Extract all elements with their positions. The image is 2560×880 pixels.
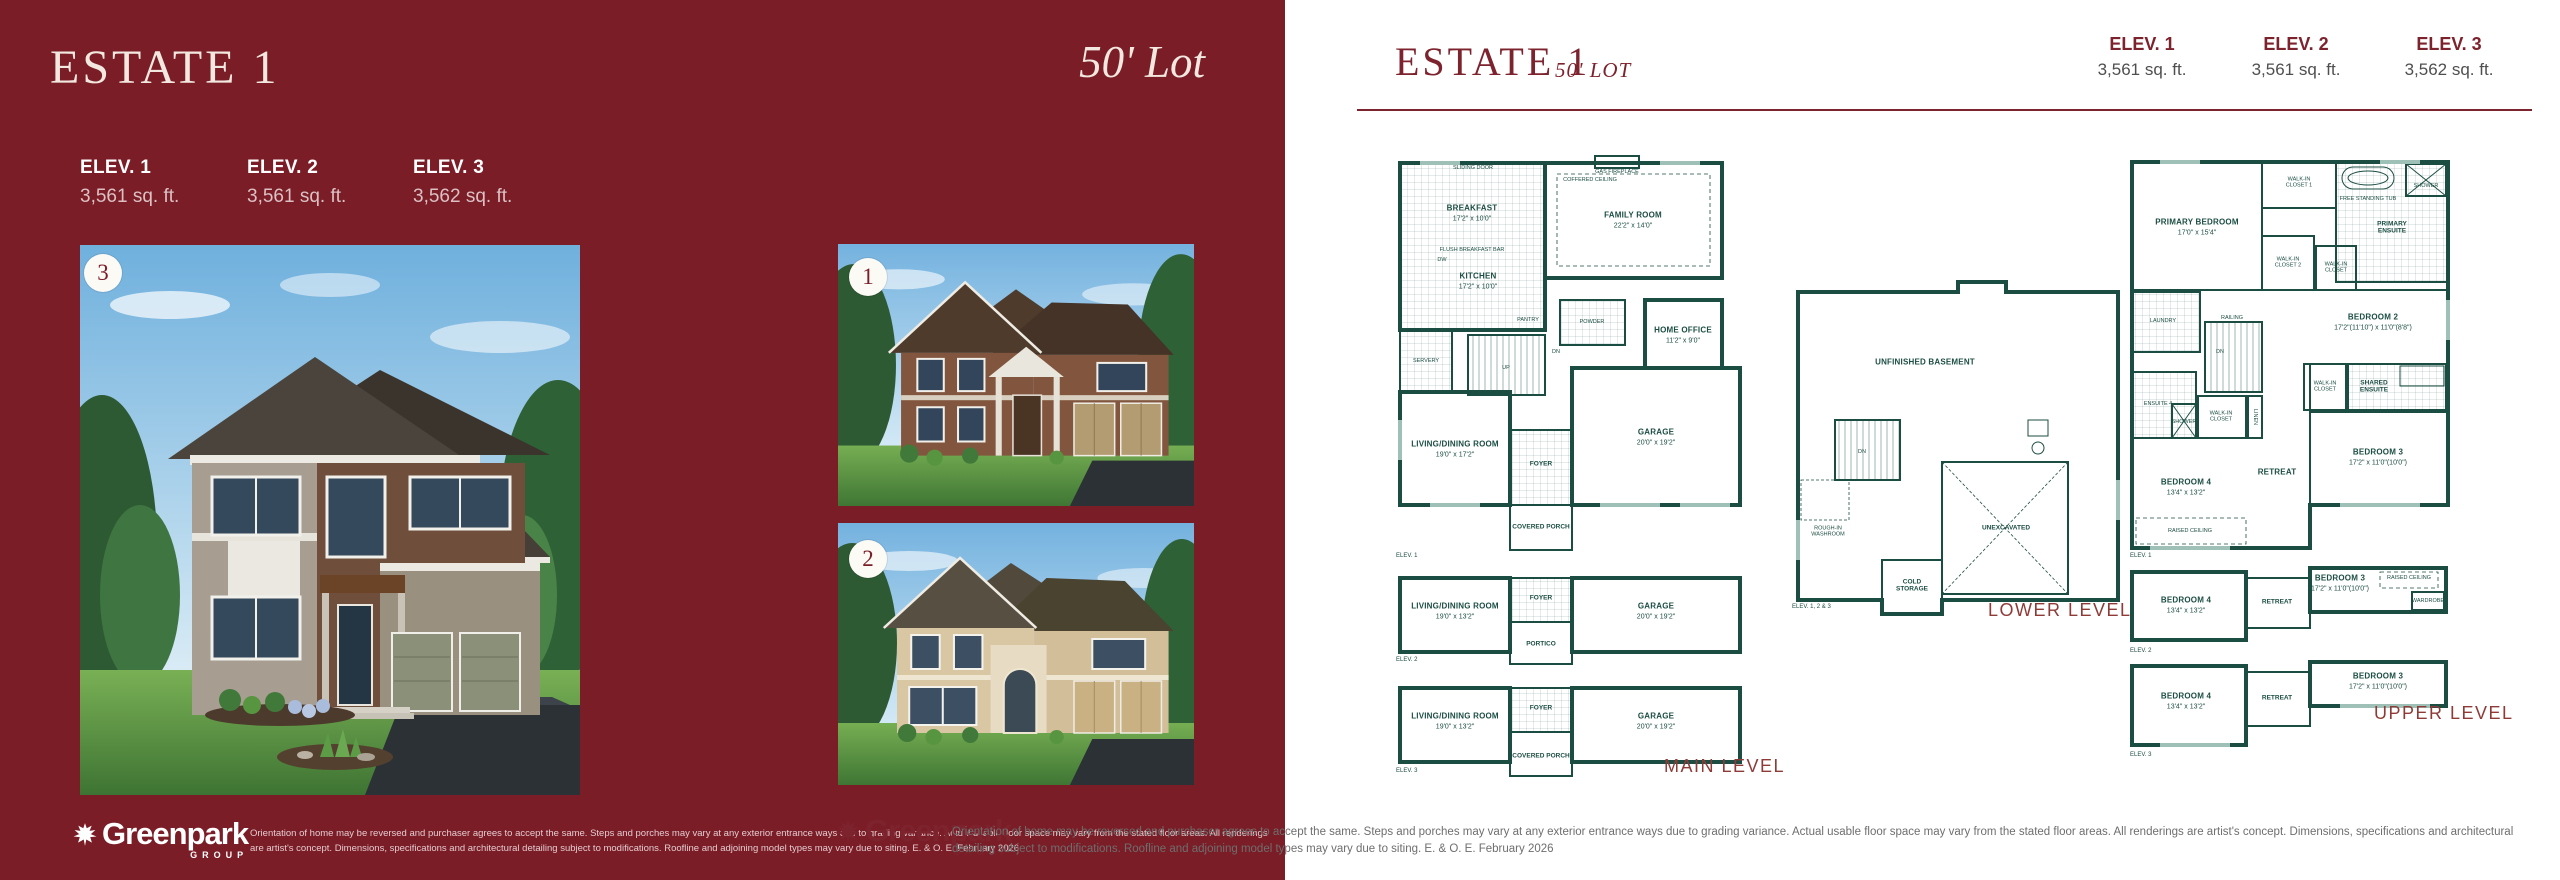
label-covered-porch: COVERED PORCH bbox=[1512, 524, 1569, 531]
label-walk-in-closet-1: WALK-IN CLOSET 1 bbox=[2276, 177, 2322, 190]
label-unexcavated: UNEXCAVATED bbox=[1982, 525, 2030, 532]
disclaimer-text: Orientation of home may be reversed and … bbox=[952, 824, 2534, 859]
label-living-dining: LIVING/DINING ROOM bbox=[1411, 440, 1499, 449]
elevation-area: 3,562 sq. ft. bbox=[2373, 60, 2525, 80]
label-gas-fireplace: GAS FIREPLACE bbox=[1595, 169, 1639, 175]
house-rendering-elevation-1 bbox=[838, 244, 1194, 506]
label-retreat: RETREAT bbox=[2262, 599, 2292, 606]
label-garage: GARAGE bbox=[1638, 712, 1674, 721]
elevation-label: ELEV. 2 bbox=[2220, 34, 2372, 55]
label-bedroom-4: BEDROOM 4 bbox=[2161, 596, 2211, 605]
label-railing: RAILING bbox=[2221, 315, 2243, 321]
brand-name: Greenpark bbox=[102, 816, 248, 851]
label-primary-ensuite: PRIMARY ENSUITE bbox=[2369, 221, 2415, 236]
label-home-office: HOME OFFICE bbox=[1654, 326, 1712, 335]
elevation-label: ELEV. 3 bbox=[413, 157, 512, 179]
label-elev3-tag: ELEV. 3 bbox=[1396, 768, 1417, 774]
lot-size-label: 50' Lot bbox=[1020, 36, 1205, 88]
elevation-label: ELEV. 1 bbox=[80, 157, 179, 179]
label-unfinished-basement: UNFINISHED BASEMENT bbox=[1875, 358, 1975, 367]
label-garage-dim: 20'0" x 19'2" bbox=[1637, 614, 1675, 621]
elevation-info-3: ELEV. 3 3,562 sq. ft. bbox=[2373, 34, 2525, 80]
house-rendering-elevation-2 bbox=[838, 523, 1194, 785]
label-covered-porch: COVERED PORCH bbox=[1512, 753, 1569, 760]
label-walk-in-closet-2: WALK-IN CLOSET 2 bbox=[2268, 257, 2308, 270]
label-raised-ceiling: RAISED CEILING bbox=[2387, 575, 2431, 581]
rendering-badge-3: 3 bbox=[84, 254, 122, 292]
label-foyer: FOYER bbox=[1530, 595, 1552, 602]
brochure-spread: ESTATE 1 50' Lot ELEV. 1 3,561 sq. ft. E… bbox=[0, 0, 2560, 880]
label-portico: PORTICO bbox=[1526, 641, 1556, 648]
elevation-info-2: ELEV. 2 3,561 sq. ft. bbox=[247, 157, 346, 208]
label-up: UP bbox=[1502, 365, 1510, 371]
label-walk-in-closet: WALK-IN CLOSET bbox=[2305, 381, 2345, 394]
house-rendering-elevation-3 bbox=[80, 245, 580, 795]
label-bedroom-4: BEDROOM 4 bbox=[2161, 692, 2211, 701]
lower-level-title: LOWER LEVEL bbox=[1988, 600, 2132, 621]
label-dw: DW bbox=[1437, 257, 1446, 263]
label-shower: SHOWER bbox=[2172, 419, 2197, 425]
label-elev2-tag: ELEV. 2 bbox=[1396, 657, 1417, 663]
label-breakfast-dim: 17'2" x 10'0" bbox=[1453, 216, 1491, 223]
label-bedroom-4-dim: 13'4" x 13'2" bbox=[2167, 490, 2205, 497]
label-linen: LINEN bbox=[2252, 409, 2258, 425]
label-dn: DN bbox=[2216, 349, 2224, 355]
label-flush-breakfast-bar: FLUSH BREAKFAST BAR bbox=[1440, 247, 1505, 253]
label-ensuite-4: ENSUITE 4 bbox=[2144, 401, 2172, 407]
label-bedroom-2: BEDROOM 2 bbox=[2348, 313, 2398, 322]
label-dn: DN bbox=[1552, 349, 1560, 355]
elevation-area: 3,561 sq. ft. bbox=[80, 186, 179, 208]
header-divider bbox=[1357, 109, 2532, 111]
page-title: ESTATE 1 bbox=[50, 40, 279, 95]
rendering-badge-1: 1 bbox=[849, 258, 887, 296]
label-bedroom-3-dim: 17'2" x 11'0"(10'0") bbox=[2349, 460, 2407, 467]
label-primary-bedroom: PRIMARY BEDROOM bbox=[2155, 218, 2238, 227]
maple-leaf-icon bbox=[835, 819, 861, 845]
label-garage: GARAGE bbox=[1638, 428, 1674, 437]
label-coffered-ceiling: COFFERED CEILING bbox=[1563, 177, 1617, 183]
elevation-info-2: ELEV. 2 3,561 sq. ft. bbox=[2220, 34, 2372, 80]
upper-level-title: UPPER LEVEL bbox=[2374, 703, 2514, 724]
elevation-area: 3,561 sq. ft. bbox=[2066, 60, 2218, 80]
elevation-label: ELEV. 3 bbox=[2373, 34, 2525, 55]
label-kitchen-dim: 17'2" x 10'0" bbox=[1459, 284, 1497, 291]
label-elev1-tag: ELEV. 1 bbox=[1396, 553, 1417, 559]
label-garage-dim: 20'0" x 19'2" bbox=[1637, 440, 1675, 447]
label-bedroom-3: BEDROOM 3 bbox=[2353, 448, 2403, 457]
label-garage-dim: 20'0" x 19'2" bbox=[1637, 724, 1675, 731]
label-servery: SERVERY bbox=[1413, 358, 1439, 364]
label-family-room-dim: 22'2" x 14'0" bbox=[1614, 223, 1652, 230]
elevation-area: 3,561 sq. ft. bbox=[2220, 60, 2372, 80]
label-bedroom-2-dim: 17'2"(11'10") x 11'0"(8'8") bbox=[2334, 325, 2412, 332]
label-retreat: RETREAT bbox=[2262, 695, 2292, 702]
label-sliding-door: SLIDING DOOR bbox=[1453, 165, 1493, 171]
label-living-dining: LIVING/DINING ROOM bbox=[1411, 712, 1499, 721]
label-pantry: PANTRY bbox=[1517, 317, 1539, 323]
badge-number: 1 bbox=[862, 264, 874, 290]
label-family-room: FAMILY ROOM bbox=[1604, 211, 1662, 220]
label-living-dining-dim: 19'0" x 13'2" bbox=[1436, 724, 1474, 731]
label-bedroom-3: BEDROOM 3 bbox=[2315, 574, 2365, 583]
elevation-area: 3,561 sq. ft. bbox=[247, 186, 346, 208]
label-walk-in-closet: WALK-IN CLOSET bbox=[2201, 411, 2241, 424]
label-raised-ceiling: RAISED CEILING bbox=[2168, 528, 2212, 534]
label-elev1-tag: ELEV. 1 bbox=[2130, 553, 2151, 559]
maple-leaf-icon bbox=[72, 822, 98, 848]
label-foyer: FOYER bbox=[1530, 705, 1552, 712]
label-garage: GARAGE bbox=[1638, 602, 1674, 611]
label-living-dining-dim: 19'0" x 17'2" bbox=[1436, 452, 1474, 459]
label-laundry: LAUNDRY bbox=[2150, 318, 2176, 324]
label-living-dining: LIVING/DINING ROOM bbox=[1411, 602, 1499, 611]
label-elev3-tag: ELEV. 3 bbox=[2130, 752, 2151, 758]
label-primary-bedroom-dim: 17'0" x 15'4" bbox=[2178, 230, 2216, 237]
elevation-area: 3,562 sq. ft. bbox=[413, 186, 512, 208]
elevation-info-1: ELEV. 1 3,561 sq. ft. bbox=[2066, 34, 2218, 80]
badge-number: 3 bbox=[97, 260, 109, 286]
label-wardrobe: WARDROBE bbox=[2412, 598, 2444, 604]
label-bedroom-3-dim: 17'2" x 11'0"(10'0") bbox=[2311, 586, 2369, 593]
label-breakfast: BREAKFAST bbox=[1447, 204, 1498, 213]
label-bedroom-4-dim: 13'4" x 13'2" bbox=[2167, 608, 2205, 615]
label-retreat: RETREAT bbox=[2258, 468, 2297, 477]
elevation-label: ELEV. 1 bbox=[2066, 34, 2218, 55]
elevation-info-3: ELEV. 3 3,562 sq. ft. bbox=[413, 157, 512, 208]
label-dn: DN bbox=[1858, 449, 1866, 455]
label-bedroom-4: BEDROOM 4 bbox=[2161, 478, 2211, 487]
label-shared-ensuite: SHARED ENSUITE bbox=[2351, 380, 2397, 395]
label-bedroom-4-dim: 13'4" x 13'2" bbox=[2167, 704, 2205, 711]
label-bedroom-3-dim: 17'2" x 11'0"(10'0") bbox=[2349, 684, 2407, 691]
label-kitchen: KITCHEN bbox=[1460, 272, 1497, 281]
label-elev-all-tag: ELEV. 1, 2 & 3 bbox=[1792, 604, 1831, 610]
label-home-office-dim: 11'2" x 9'0" bbox=[1666, 338, 1700, 345]
label-walk-in-closet: WALK-IN CLOSET bbox=[2318, 262, 2354, 275]
label-free-standing-tub: FREE STANDING TUB bbox=[2340, 196, 2397, 202]
main-level-title: MAIN LEVEL bbox=[1664, 756, 1785, 777]
lot-size-label: 50' LOT bbox=[1555, 58, 1631, 83]
greenpark-logo: Greenpark GROUP bbox=[72, 818, 248, 860]
rendering-badge-2: 2 bbox=[849, 540, 887, 578]
badge-number: 2 bbox=[862, 546, 874, 572]
label-cold-storage: COLD STORAGE bbox=[1892, 579, 1932, 594]
brand-subname: GROUP bbox=[102, 851, 248, 860]
label-bedroom-3: BEDROOM 3 bbox=[2353, 672, 2403, 681]
label-living-dining-dim: 19'0" x 13'2" bbox=[1436, 614, 1474, 621]
label-foyer: FOYER bbox=[1530, 461, 1552, 468]
elevation-info-1: ELEV. 1 3,561 sq. ft. bbox=[80, 157, 179, 208]
label-elev2-tag: ELEV. 2 bbox=[2130, 648, 2151, 654]
label-powder: POWDER bbox=[1580, 319, 1605, 325]
label-rough-in-washroom: ROUGH-IN WASHROOM bbox=[1805, 526, 1851, 539]
label-shower: SHOWER bbox=[2414, 183, 2439, 189]
elevation-label: ELEV. 2 bbox=[247, 157, 346, 179]
